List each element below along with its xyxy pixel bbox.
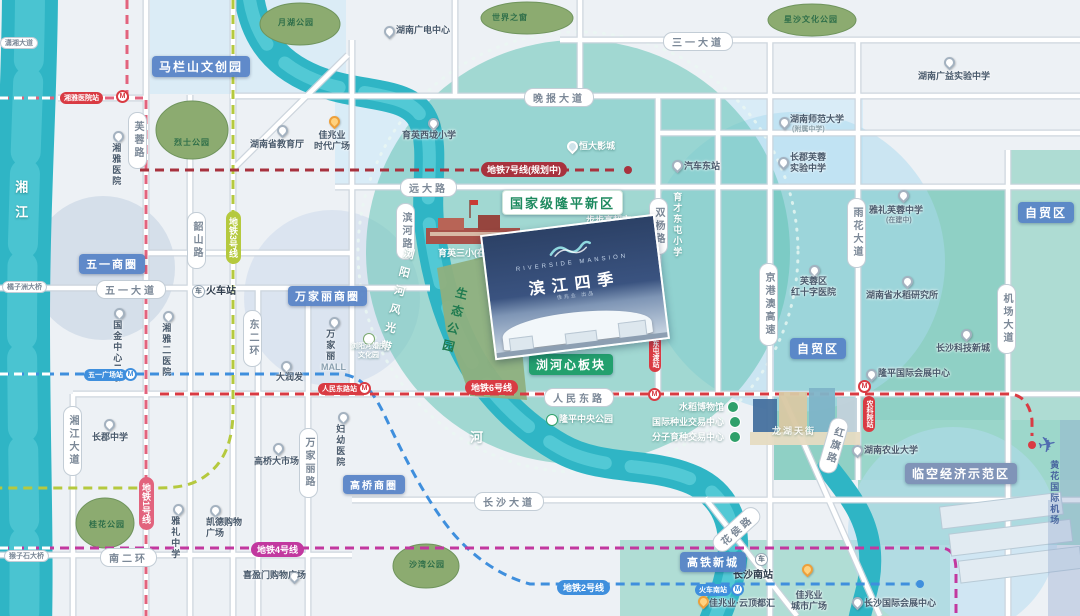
station-dongtundu: 东屯渡站 xyxy=(649,336,661,372)
poi-agricultural-university: 湖南农业大学 xyxy=(864,445,918,456)
poi-hunan-broadcasting: 湖南广电中心 xyxy=(396,25,450,36)
poi-breeding-trade-center: 分子育种交易中心 xyxy=(652,432,724,443)
poi-intl-exhibition-center: 长沙国际会展中心 xyxy=(864,598,936,609)
badge-metro-line1: 地铁1号线 xyxy=(139,477,154,530)
river-he-character: 河 xyxy=(470,430,483,446)
metro-roundel-icon: M xyxy=(731,583,744,596)
station-xiangya-hospital: 湘雅医院站 xyxy=(60,92,103,104)
poi-hunan-normal-univ: 湖南师范大学 xyxy=(790,114,844,125)
park-yuehu: 月湖公园 xyxy=(278,18,314,28)
road-east-2nd-ring: 东二环 xyxy=(243,310,262,367)
poi-yuying-xilong-school: 育英西垅小学 xyxy=(402,130,456,141)
seed-trade-icon xyxy=(729,416,741,428)
poi-yali-school: 雅礼中学 xyxy=(169,516,180,560)
poi-fuyou-hospital: 妇幼医院 xyxy=(334,424,345,468)
road-xiangjiang-avenue: 湘江大道 xyxy=(63,406,82,476)
poi-yali-furong-school: 雅礼芙蓉中学 xyxy=(869,205,923,216)
poi-kaide-plaza: 凯德购物 广场 xyxy=(206,517,242,540)
poi-changjun-furong-school: 长郡芙蓉 实验中学 xyxy=(790,152,826,175)
road-changsha-avenue: 长沙大道 xyxy=(474,492,544,511)
road-wanbao-avenue: 晚报大道 xyxy=(524,88,594,107)
project-wave-logo-icon xyxy=(547,238,593,259)
station-renmin-east: 人民东路站 xyxy=(318,383,361,395)
badge-metro-line3: 地铁3号线 xyxy=(226,211,241,264)
road-houzishi-bridge: 猴子石大桥 xyxy=(4,550,49,562)
badge-metro-line7: 地铁7号线(规划中) xyxy=(481,162,567,177)
badge-metro-line6: 地铁6号线 xyxy=(465,380,518,395)
poi-wanjiali-mall: 万家丽 xyxy=(324,329,335,362)
metro-roundel-icon: M xyxy=(358,382,371,395)
poi-kaisa-yunding: 佳兆业·云顶都汇 xyxy=(709,598,775,609)
xiangjiang-river-label: 湘江 xyxy=(12,180,28,230)
station-south-railway: 火车南站 xyxy=(695,584,731,596)
road-sanyi-avenue: 三一大道 xyxy=(663,32,733,51)
road-yuanda-road: 远大路 xyxy=(400,178,457,197)
poi-xiangya-hospital: 湘雅医院 xyxy=(110,143,121,187)
badge-airport-economic-zone: 临空经济示范区 xyxy=(905,463,1017,484)
road-yuhua-avenue: 雨花大道 xyxy=(847,198,866,268)
poi-education-department: 湖南省教育厅 xyxy=(250,139,304,150)
poi-xiyingmen-plaza: 喜盈门购物广场 xyxy=(243,570,306,581)
poi-yucai-dongtun-school: 育才东屯小学 xyxy=(671,192,682,258)
breeding-trade-icon xyxy=(729,431,741,443)
poi-longping-central-park: 隆平中央公园 xyxy=(559,414,613,425)
railway-station-icon: 车 xyxy=(192,285,205,298)
park-window-of-world: 世界之窗 xyxy=(492,13,528,23)
park-xingsha-culture: 星沙文化公园 xyxy=(784,15,838,25)
poi-guangyi-school: 湖南广益实验中学 xyxy=(918,71,990,82)
poi-hunan-normal-univ-sub: (附属中学) xyxy=(792,126,825,135)
poi-rice-museum: 水稻博物馆 xyxy=(679,402,724,413)
poi-gaoqiao-market: 高桥大市场 xyxy=(254,456,299,467)
metro-roundel-icon: M xyxy=(124,368,137,381)
road-south-2nd-ring: 南二环 xyxy=(100,548,157,567)
poi-keji-newtown: 长沙科技新城 xyxy=(936,343,990,354)
park-lieshi: 烈士公园 xyxy=(174,138,210,148)
real-estate-location-map: 湘江 浏阳河风光带 河 三一大道 晚报大道 远大路 五一大道 人民东路 长沙大道… xyxy=(0,0,1080,616)
poi-redcross-hospital: 芙蓉区 红十字医院 xyxy=(791,276,836,299)
poi-xiangya-2nd-hospital: 湘雅二医院 xyxy=(160,323,171,378)
poi-huanghua-airport: 黄花国际机场 xyxy=(1048,460,1059,526)
badge-longping-new-area: 国家级隆平新区 xyxy=(502,190,623,215)
badge-ftz-northeast: 自贸区 xyxy=(1018,202,1074,223)
road-jichang-avenue: 机场大道 xyxy=(997,284,1016,354)
road-shaoshan-road: 韶山路 xyxy=(187,212,206,269)
badge-gaoqiao-cbd: 高桥商圈 xyxy=(343,475,405,494)
metro-roundel-icon: M xyxy=(648,388,661,401)
badge-ftz-middle: 自贸区 xyxy=(790,338,846,359)
road-jinggangao-expwy: 京港澳高速 xyxy=(759,263,778,346)
poi-wedding-culture-park: 浏阳河婚庆 文化园 xyxy=(351,343,386,361)
poi-seed-trade-center: 国际种业交易中心 xyxy=(652,417,724,428)
road-juzizhou-bridge: 橘子洲大桥 xyxy=(2,281,47,293)
badge-hsr-newtown: 高铁新城 xyxy=(680,552,746,572)
metro-roundel-icon: M xyxy=(116,90,129,103)
project-card-riverside-mansion: RIVERSIDE MANSION 滨江四季 佳兆业 出品 xyxy=(480,214,670,361)
hsr-station-icon: 车 xyxy=(755,553,768,566)
poi-yali-furong-school-sub: (在建中) xyxy=(886,217,912,226)
rice-museum-icon xyxy=(727,401,739,413)
park-shawan: 沙湾公园 xyxy=(409,560,445,570)
road-wanjiali-road: 万家丽路 xyxy=(299,428,318,498)
metro-roundel-icon: M xyxy=(858,380,871,393)
poi-changjun-school: 长郡中学 xyxy=(92,432,128,443)
park-guihua: 桂花公园 xyxy=(89,520,125,530)
poi-wanjiali-mall-en: MALL xyxy=(321,362,346,373)
poi-rice-institute: 湖南省水稻研究所 xyxy=(866,290,938,301)
badge-wanjiali-cbd: 万家丽商圈 xyxy=(288,286,367,306)
badge-metro-line4: 地铁4号线 xyxy=(251,542,304,557)
road-wuyi-avenue: 五一大道 xyxy=(96,280,166,299)
poi-darunfa: 大润发 xyxy=(276,372,303,383)
road-renmin-east: 人民东路 xyxy=(544,388,614,407)
poi-longhu-tianjie: 龙湖天街 xyxy=(772,426,816,437)
station-nongkeyuan: 农科院站 xyxy=(863,396,875,432)
badge-liuhexin-plate: 浏河心板块 xyxy=(529,354,613,375)
road-xiaoxiang-avenue: 潇湘大道 xyxy=(0,37,38,49)
badge-wuyi-cbd: 五一商圈 xyxy=(79,254,145,274)
poi-longping-exhibition-center: 隆平国际会展中心 xyxy=(878,368,950,379)
station-wuyi-square: 五一广场站 xyxy=(84,369,127,381)
poi-kaisa-times-plaza: 佳兆业 时代广场 xyxy=(314,130,350,153)
poi-kaisa-city-plaza: 佳兆业 城市广场 xyxy=(791,590,827,613)
poi-east-bus-station: 汽车东站 xyxy=(684,161,720,172)
park-tree-icon xyxy=(546,414,558,426)
badge-metro-line2: 地铁2号线 xyxy=(557,580,610,595)
poi-hengda-cinema: 恒大影城 xyxy=(579,141,615,152)
badge-malanshan-zone: 马栏山文创园 xyxy=(152,56,250,77)
poi-railway-station: 火车站 xyxy=(206,286,236,299)
road-furong-road: 芙蓉路 xyxy=(128,112,147,169)
